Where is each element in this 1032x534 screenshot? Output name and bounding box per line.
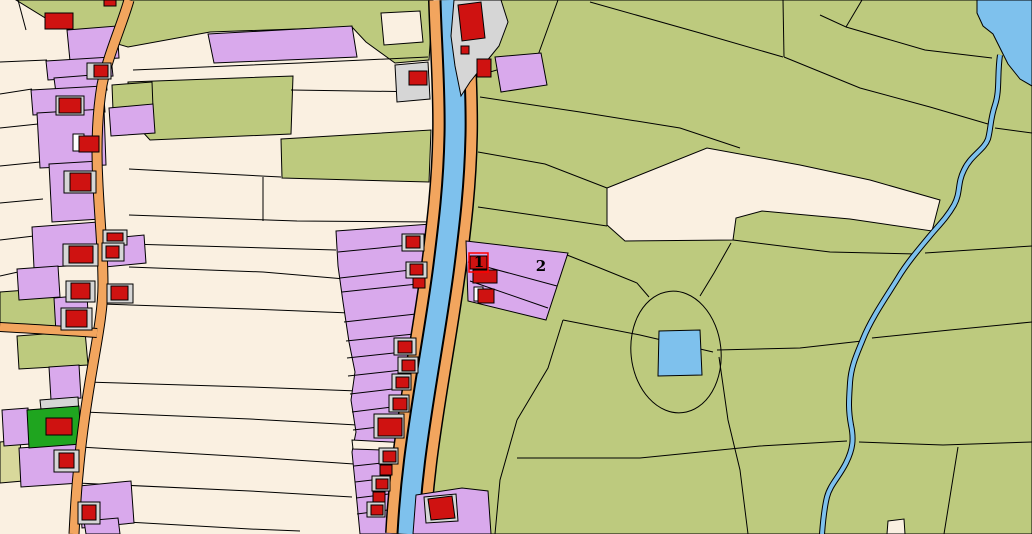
small-parcel-bottom-right xyxy=(887,519,905,534)
parcel-label-2: 2 xyxy=(536,257,546,275)
parcel-label-1: 1 xyxy=(474,253,484,271)
map-canvas[interactable]: 1 2 xyxy=(0,0,1032,534)
pond xyxy=(658,330,702,376)
